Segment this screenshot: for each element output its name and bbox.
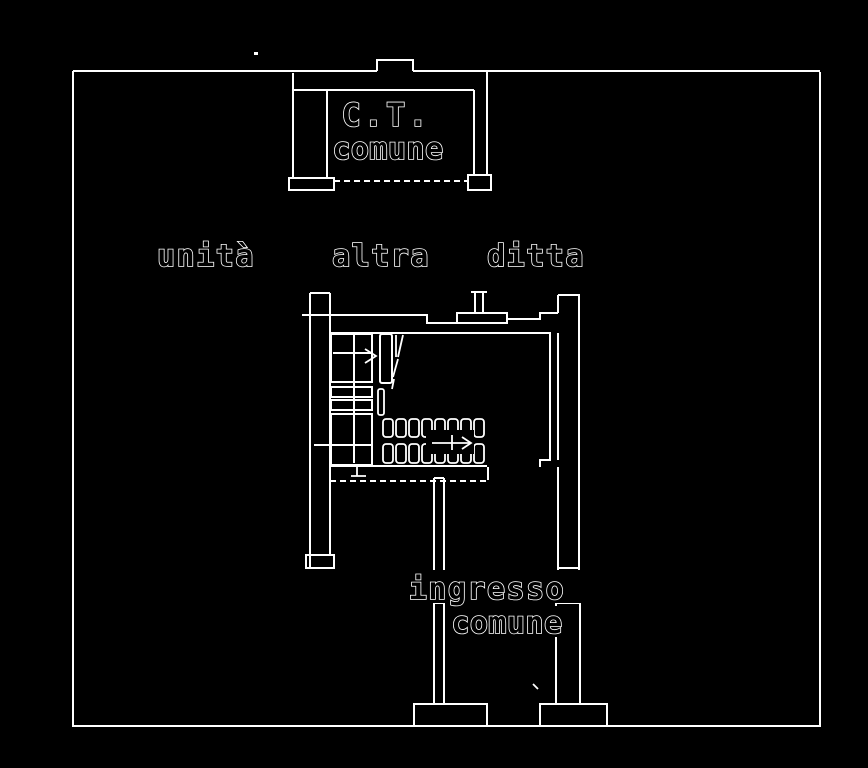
corridor-right-wall-foot: [540, 704, 607, 726]
stair-lower-cell: [331, 414, 372, 465]
stair-right-wall: [558, 295, 579, 570]
stair-landing-slat: [331, 400, 372, 410]
floor-plan-drawing: C.T. comune unità altra ditta: [0, 0, 868, 768]
entrance-label-line1: ingresso: [409, 572, 566, 607]
corridor-left-wall: [434, 478, 444, 570]
ct-room-label-line2: comune: [332, 132, 443, 167]
stair-upper-flight: [380, 334, 392, 383]
ownership-label-ditta: ditta: [487, 239, 585, 274]
staircase: [302, 292, 579, 570]
corridor-left-wall-foot: [414, 704, 487, 726]
stair-landing-slat: [331, 387, 372, 397]
floor-plan-canvas: C.T. comune unità altra ditta: [0, 0, 868, 768]
ct-right-pillar-foot: [468, 175, 491, 190]
ownership-labels: unità altra ditta: [157, 239, 585, 274]
stair-direction-arrowhead-upper: [365, 349, 376, 363]
ownership-label-altra: altra: [332, 239, 430, 274]
ct-room: C.T. comune: [289, 72, 491, 190]
ownership-label-unita: unità: [157, 239, 255, 274]
stair-top-ledge: [457, 313, 507, 323]
ct-room-label-line1: C.T.: [341, 96, 430, 134]
elevator-shaft: [331, 334, 372, 382]
scan-speck: [254, 52, 258, 55]
entrance-corridor: ingresso comune: [406, 478, 607, 726]
scan-tick: [533, 684, 538, 689]
entrance-label-line2: comune: [451, 606, 562, 641]
ct-left-pillar-foot: [289, 178, 334, 190]
outer-boundary: [73, 52, 820, 727]
